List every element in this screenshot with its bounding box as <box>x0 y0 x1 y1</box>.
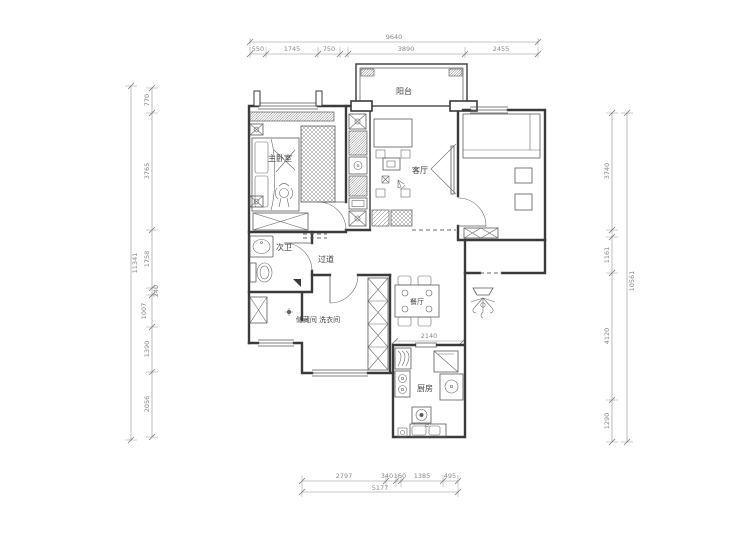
cabinet-unit <box>349 198 367 209</box>
room-label-dining: 餐厅 <box>410 297 424 306</box>
floor-plan-drawing: 9640 550 1745 750 3890 2455 11341 770 37… <box>0 0 740 555</box>
dim-right-seg-1: 1161 <box>603 247 611 264</box>
plant-icon <box>471 288 495 318</box>
storage-cabinet <box>250 297 267 323</box>
dim-left-seg-3: 240 <box>152 285 160 297</box>
washbasin-icon <box>250 236 273 257</box>
floor-plan: 9640 550 1745 750 3890 2455 11341 770 37… <box>0 0 740 555</box>
room-label-kitchen: 厨房 <box>417 383 433 393</box>
dim-top-seg-3: 3890 <box>398 45 415 53</box>
ceiling-lamp-icon <box>285 308 293 316</box>
tv-icon <box>431 144 456 194</box>
dim-top-seg-2: 750 <box>323 45 335 53</box>
dim-bottom-seg-1: 340 <box>381 472 393 480</box>
nightstand <box>515 194 532 210</box>
dining-area: 餐厅 <box>395 276 439 326</box>
dim-top-total: 9640 <box>386 33 403 41</box>
stove-icon <box>395 371 410 397</box>
floor-mat <box>391 210 412 226</box>
dish-rack-icon <box>395 348 411 369</box>
door-master-bedroom <box>318 202 346 230</box>
dim-left-seg-1: 3765 <box>143 163 151 180</box>
cabinet-strip <box>349 114 367 226</box>
wardrobe-column <box>368 278 388 370</box>
kitchen-sink-icon <box>440 374 463 400</box>
small-fixture <box>398 428 407 437</box>
dim-right-seg-2: 4120 <box>603 328 611 345</box>
room-label-master-bedroom: 主卧室 <box>268 153 292 163</box>
nightstand <box>515 168 532 183</box>
floor-drain-icon <box>293 279 301 287</box>
column-icon <box>250 124 263 135</box>
dim-right-total: 10561 <box>628 271 636 292</box>
room-label-balcony: 阳台 <box>396 86 412 96</box>
dim-left-total: 11341 <box>131 253 139 274</box>
kitchen: 厨房 <box>395 348 463 437</box>
dim-left-seg-4: 1007 <box>140 303 148 320</box>
chair <box>398 276 411 285</box>
bed <box>252 138 299 211</box>
chair <box>418 317 431 326</box>
bathroom: 次卫 <box>250 236 301 287</box>
door-second-bedroom <box>458 198 486 226</box>
cabinet-unit <box>349 176 367 196</box>
toilet-icon <box>250 263 272 282</box>
sideboard <box>374 119 412 147</box>
dimension-kitchen-width: 2140 <box>392 332 466 344</box>
bed <box>463 114 540 158</box>
master-bedroom: 主卧室 <box>250 112 335 230</box>
room-label-storage: 储藏间 洗衣间 <box>296 315 340 324</box>
dim-bottom-seg-3: 1385 <box>414 472 431 480</box>
sofa-set <box>376 150 410 197</box>
dimension-top: 9640 550 1745 750 3890 2455 <box>247 33 541 58</box>
dim-top-seg-1: 1745 <box>284 45 301 53</box>
dim-left-seg-0: 770 <box>143 94 151 106</box>
dim-bottom-seg-0: 2797 <box>336 472 353 480</box>
second-bedroom <box>463 114 540 238</box>
closet-panel <box>301 126 335 202</box>
room-label-living-room: 客厅 <box>412 165 428 175</box>
dim-top-seg-0: 550 <box>252 45 264 53</box>
washer-icon <box>412 407 431 423</box>
fridge-icon <box>434 351 458 372</box>
dim-left-seg-6: 2056 <box>143 396 151 413</box>
counter-sink-icon <box>349 157 367 174</box>
double-sink-icon <box>410 424 446 437</box>
room-label-bathroom: 次卫 <box>276 242 292 252</box>
dimension-left: 11341 770 3765 1758 240 1007 1390 2056 <box>125 83 160 443</box>
door-storage <box>330 275 358 303</box>
floor-mat <box>372 210 389 226</box>
armchair-figure <box>275 184 293 208</box>
low-cabinet <box>253 213 308 230</box>
dim-top-seg-4: 2455 <box>493 45 510 53</box>
dim-bottom-seg-2: 160 <box>394 472 406 480</box>
dim-left-seg-5: 1390 <box>143 341 151 358</box>
chair <box>398 317 411 326</box>
dim-kitchen-width: 2140 <box>421 332 438 340</box>
dim-right-seg-3: 1290 <box>603 413 611 430</box>
dimension-bottom: 2797 340 160 1385 495 5177 <box>299 472 461 497</box>
dim-bottom-seg-4: 495 <box>444 472 456 480</box>
balcony-windows <box>356 64 467 106</box>
living-room: 客厅 <box>372 119 456 226</box>
dimension-right: 3740 1161 4120 1290 10561 <box>603 110 636 445</box>
room-label-hallway: 过道 <box>318 254 334 264</box>
shoe-cabinet <box>464 228 498 238</box>
chair <box>418 276 431 285</box>
column-icon <box>349 114 366 129</box>
cabinet-unit <box>349 131 367 155</box>
dim-left-seg-2: 1758 <box>143 251 151 268</box>
dim-bottom-total: 5177 <box>372 484 389 492</box>
dim-right-seg-0: 3740 <box>603 163 611 180</box>
wardrobe-top <box>250 112 334 121</box>
column-icon <box>349 211 366 226</box>
